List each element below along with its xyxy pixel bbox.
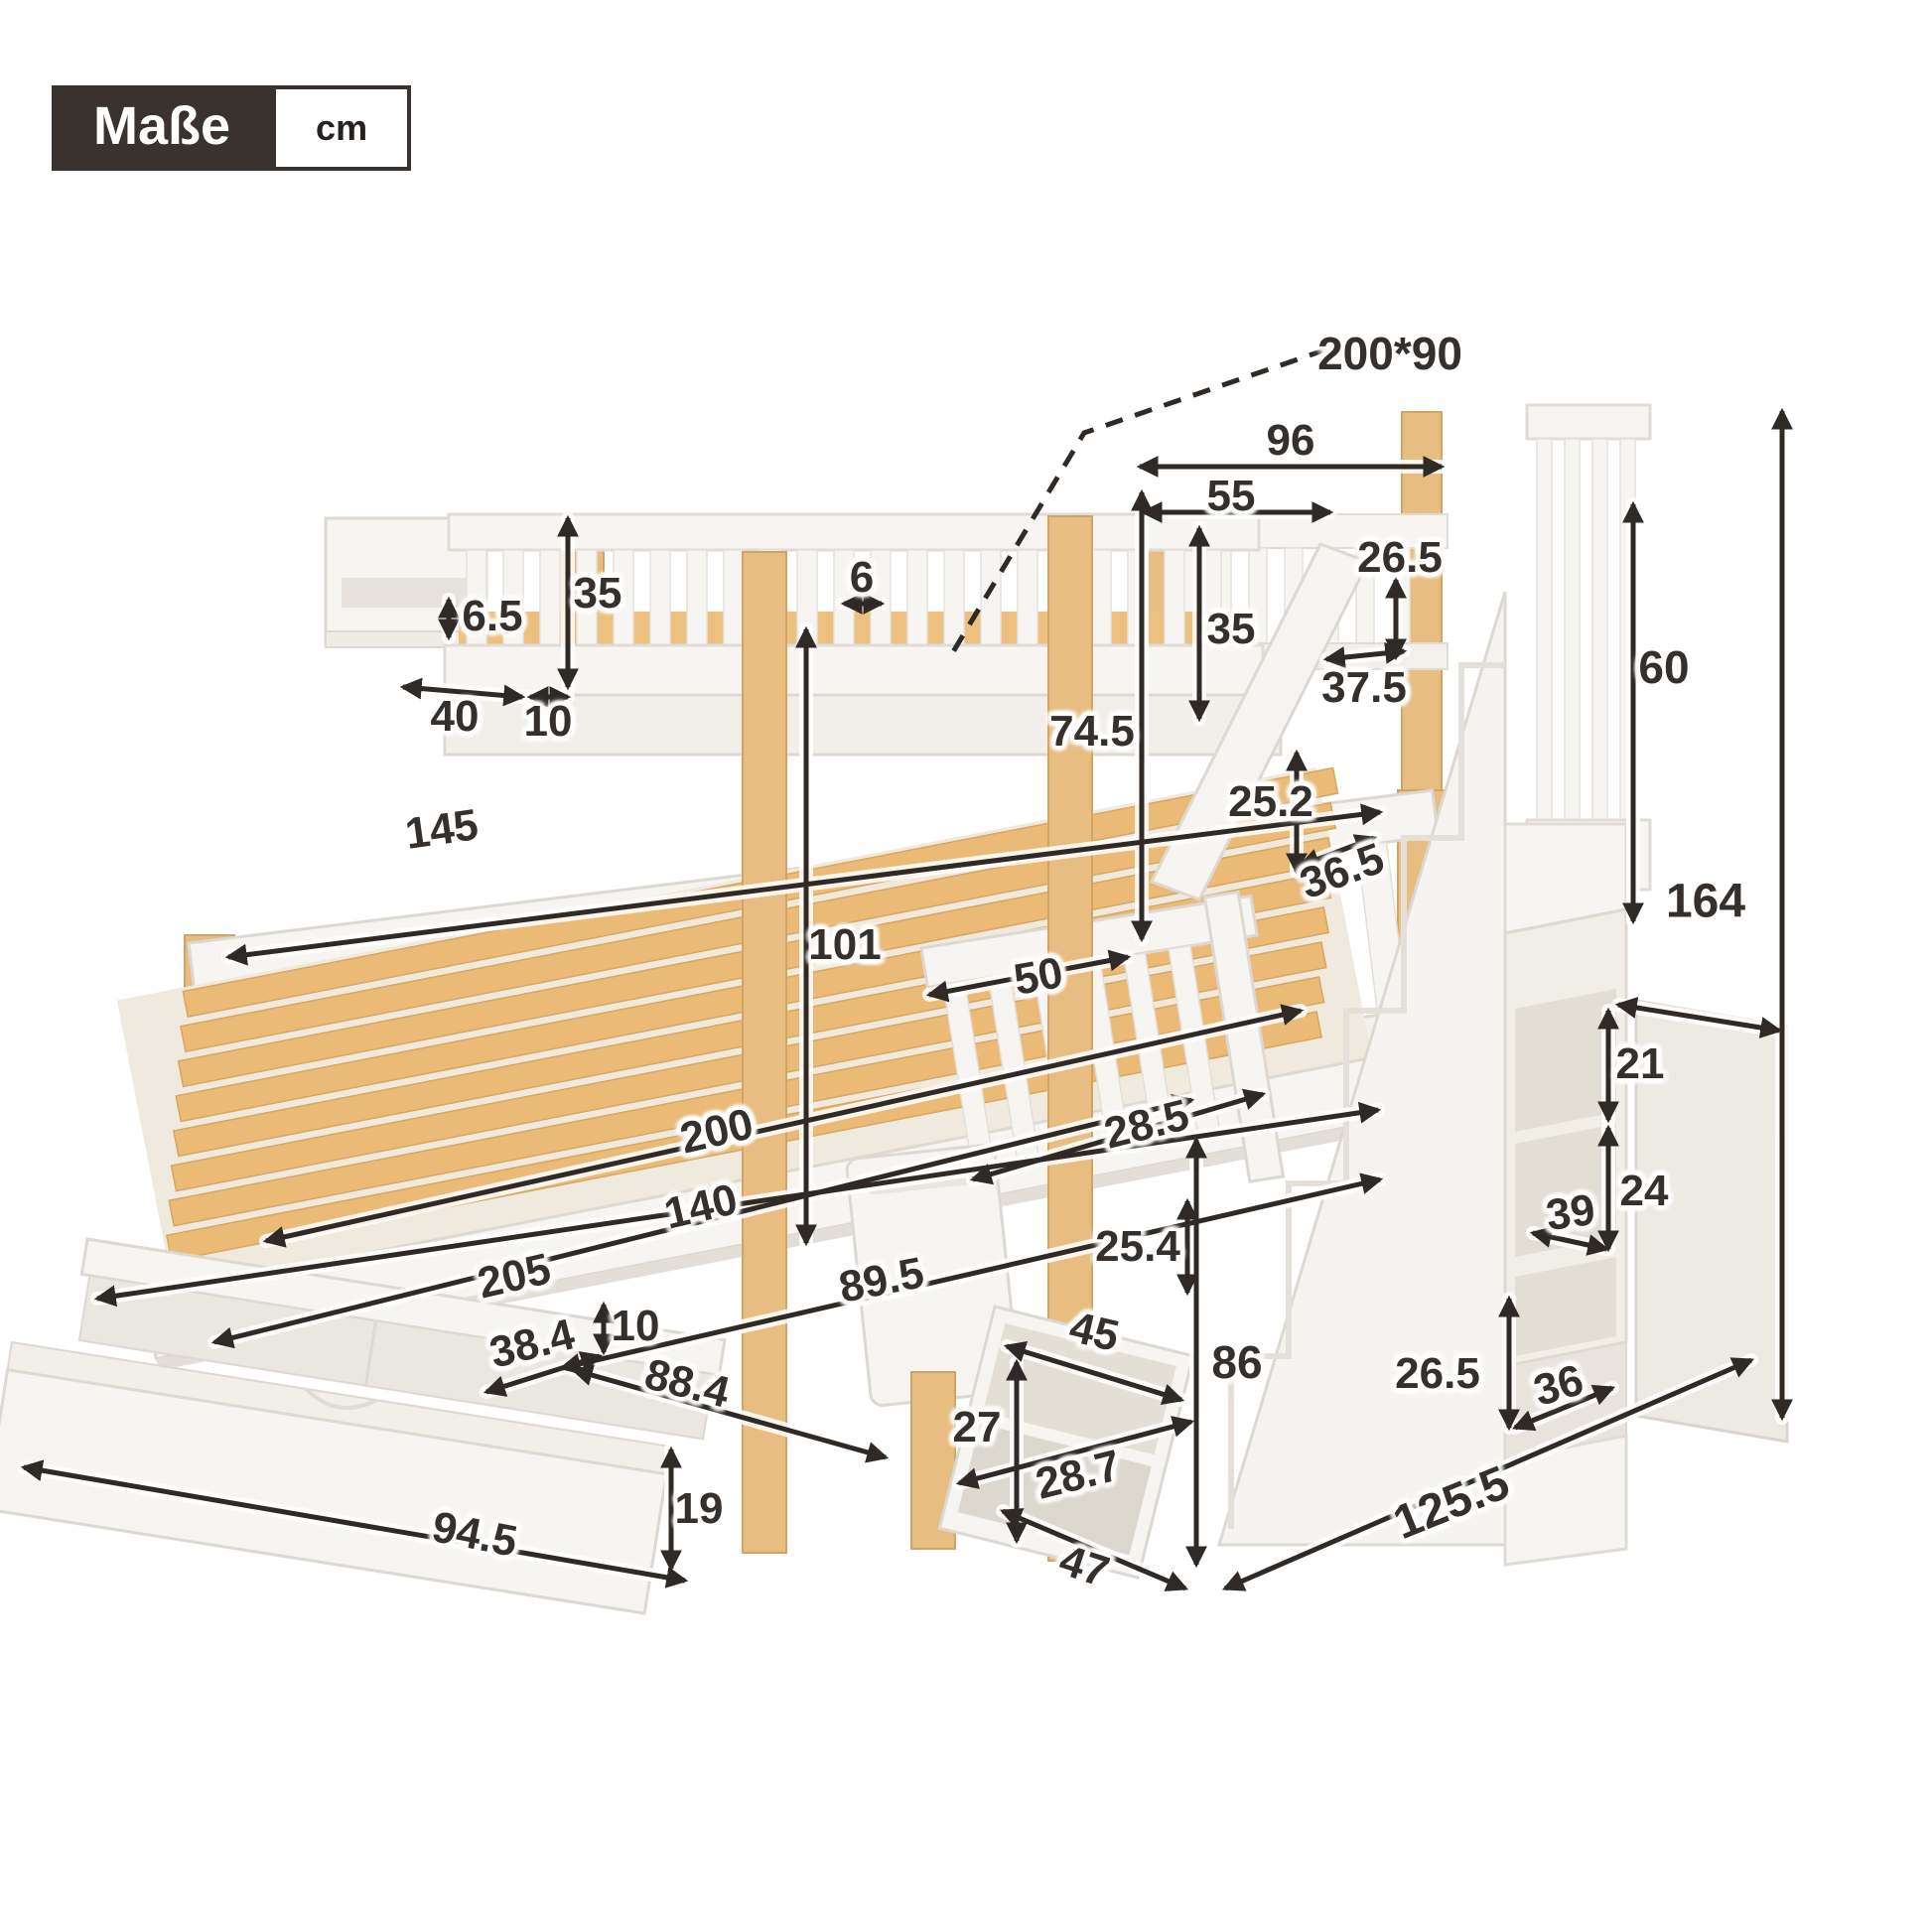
dimension-diagram: Maße cm <box>0 0 1932 1932</box>
bunk-bed-illustration <box>0 0 1932 1932</box>
